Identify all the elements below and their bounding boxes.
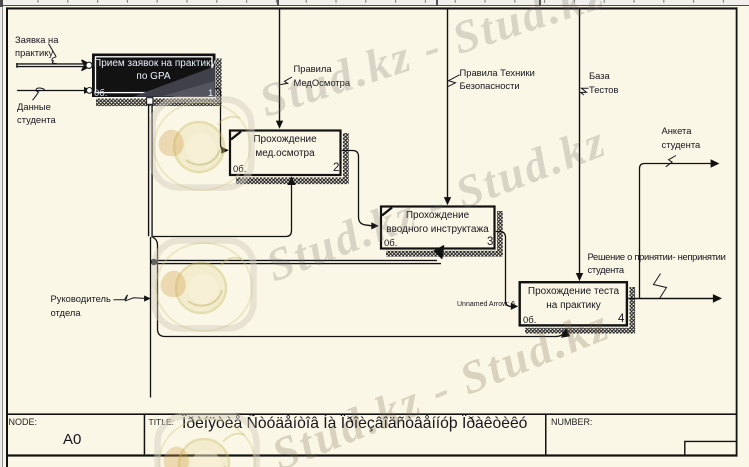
svg-text:Stud.kz - Stud.kz: Stud.kz - Stud.kz — [259, 115, 613, 291]
svg-text:Stud.kz - Stud.kz: Stud.kz - Stud.kz — [265, 298, 617, 467]
svg-text:Stud.kz - Stud.kz: Stud.kz - Stud.kz — [253, 0, 611, 127]
